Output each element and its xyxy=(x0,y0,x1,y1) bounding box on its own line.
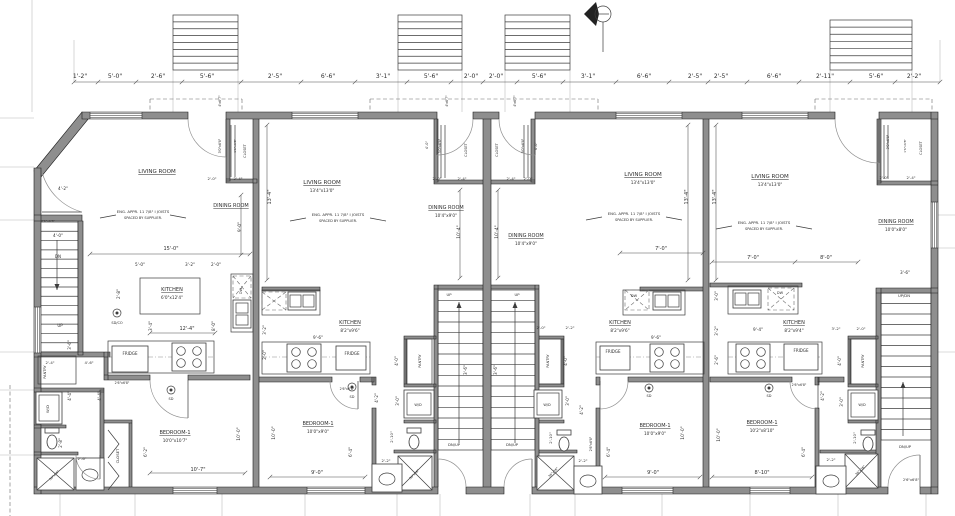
dishwasher-label: DW xyxy=(239,287,243,294)
dim-label: 7'-0" xyxy=(747,255,759,261)
stair-label: DN/UP xyxy=(899,444,912,449)
room-size: 13'4"x13'0" xyxy=(310,188,335,193)
dim-label: 6'-2" xyxy=(143,447,148,457)
door-size: 2'6"x6'8" xyxy=(340,387,355,391)
dim-label: 9'-4" xyxy=(753,327,763,332)
dim-label: 2'-0" xyxy=(489,73,503,80)
dim-label: 15'-0" xyxy=(163,246,178,252)
dim-label: 2'-11" xyxy=(816,73,834,80)
dim-label: 3'-4" xyxy=(148,321,153,331)
dim-label: 2'-0" xyxy=(524,176,533,181)
door-size: 3'0"x6'8" xyxy=(521,138,525,153)
fridge-label: FRIDGE xyxy=(794,348,809,353)
fridge-label: FRIDGE xyxy=(606,349,621,354)
window xyxy=(742,112,808,119)
room-label-bedroom-3: BEDROOM-1 xyxy=(639,423,670,429)
room-label-bedroom-4: BEDROOM-1 xyxy=(746,420,777,426)
window xyxy=(90,112,142,119)
pantry-label: PANTRY xyxy=(418,353,422,367)
window xyxy=(750,487,790,494)
kitchen-sink xyxy=(653,292,681,310)
room-label-dining-3: DINING ROOM xyxy=(508,233,543,239)
room-size: 8'2"x9'6" xyxy=(610,328,629,333)
dim-label: 10'-7" xyxy=(190,467,205,473)
joist-note: SPACED BY SUPPLIER. xyxy=(124,216,162,220)
joist-note: SPACED BY SUPPLIER. xyxy=(615,218,653,222)
stove xyxy=(736,344,770,372)
smoke-detector-label: SD xyxy=(767,394,772,398)
stove xyxy=(287,344,321,372)
door-size: 3'0"x6'8" xyxy=(438,138,442,153)
dishwasher-label: DW xyxy=(631,294,638,298)
dim-label: 6'-4" xyxy=(801,447,806,457)
room-label-kitchen-3: KITCHEN xyxy=(609,320,631,326)
dim-label: 3'-6" xyxy=(493,365,498,375)
dim-label: 8'-10" xyxy=(754,470,769,476)
fridge-label: FRIDGE xyxy=(345,351,360,356)
dim-label: 3'-0" xyxy=(395,396,400,406)
dim-label: 2'-10" xyxy=(548,432,553,444)
joist-note: ENG. APPR. 11 7/8" I JOISTS xyxy=(738,220,791,225)
room-label-living-2: LIVING ROOM xyxy=(303,180,341,186)
room-size: 10'0"x9'0" xyxy=(307,429,329,434)
dim-label: 6'-6" xyxy=(637,73,651,80)
closet-label: CLOSET xyxy=(243,143,247,157)
joist-note: ENG. APPR. 11 7/8" I JOISTS xyxy=(117,209,170,214)
washer-dryer-label: W/D xyxy=(858,403,866,407)
dim-label: 13'-4" xyxy=(684,189,690,204)
door-size: 1'6"x6'8" xyxy=(903,138,907,152)
window xyxy=(931,202,938,248)
stair-label: DN/UP xyxy=(506,442,519,447)
room-label-living-3: LIVING ROOM xyxy=(624,172,662,178)
room-size: 6'0"x12'4" xyxy=(161,295,183,300)
dim-label: 2'-2" xyxy=(382,458,391,463)
dim-label: 9'-6" xyxy=(313,335,323,340)
door-size: 3'0"x6'8" xyxy=(218,138,222,153)
dishwasher-label: DW xyxy=(777,291,784,295)
dim-label: 6'-6" xyxy=(767,73,781,80)
door-size: 2'6"x6'8" xyxy=(903,478,920,482)
washer-dryer-label: W/D xyxy=(414,403,422,407)
dim-label: 3'-0" xyxy=(839,397,844,407)
dim-label: 2'-0" xyxy=(537,325,546,330)
closet-label: CLOSET xyxy=(464,142,468,156)
room-size: 10'2"x8'10" xyxy=(750,428,775,433)
window xyxy=(622,487,673,494)
dim-label: 2'-2" xyxy=(907,73,921,80)
floor-plan-canvas: 1'-2"5'-0"2'-6"5'-6"2'-5"6'-6"3'-1"5'-6"… xyxy=(0,0,955,516)
dim-label: 6'-4" xyxy=(348,447,353,457)
dim-label: 5'-6" xyxy=(532,73,546,80)
dim-label: 4'-0" xyxy=(425,140,429,149)
smoke-detector-label: SD/CO xyxy=(111,321,123,325)
dim-label: 10'-0" xyxy=(271,426,277,440)
porch-note: 4'x6'7" xyxy=(445,95,449,107)
closet-label: CLOSET xyxy=(115,448,120,463)
dim-label: 2'-4" xyxy=(458,176,467,181)
dim-label: 8'-0" xyxy=(820,255,832,261)
dim-label: 3'-2" xyxy=(714,326,719,336)
dim-label: 9'-6" xyxy=(651,335,661,340)
closet-label: CLOSET xyxy=(919,140,923,154)
washer-dryer-label: W/D xyxy=(543,403,551,407)
dim-label: 2'-0" xyxy=(464,73,478,80)
dim-label: 2'-4" xyxy=(46,360,55,365)
dim-label: 4'-2" xyxy=(820,391,825,401)
dim-label: 2'-8" xyxy=(58,438,63,448)
room-label-kitchen-4: KITCHEN xyxy=(783,320,805,326)
window xyxy=(34,307,41,353)
dim-label: 6'-4" xyxy=(606,447,611,457)
dim-label: 2'-6" xyxy=(78,456,87,461)
dim-label: 13'-4" xyxy=(267,189,273,204)
dim-label: 3'-2" xyxy=(262,325,267,335)
dim-label: 4'-0" xyxy=(53,233,63,238)
dim-label: 4'-0" xyxy=(534,141,538,150)
dim-label: 2'-0" xyxy=(857,326,866,331)
joist-note: SPACED BY SUPPLIER. xyxy=(745,227,783,231)
stove xyxy=(172,343,206,371)
smoke-detector-label: SD xyxy=(350,395,355,399)
dim-label: 3'-0" xyxy=(565,396,570,406)
smoke-detector-label: SD xyxy=(647,394,652,398)
vanity-sink xyxy=(574,466,602,494)
dim-label: 6'-6" xyxy=(321,73,335,80)
room-size: 10'0"x9'0" xyxy=(644,431,666,436)
dim-label: 2'-2" xyxy=(579,458,588,463)
dim-label: 12'-4" xyxy=(179,326,194,332)
dim-label: 5'-0" xyxy=(135,262,145,267)
window xyxy=(292,112,358,119)
closet-label: CLOSET xyxy=(495,142,499,156)
porch-note: 4'x6'7" xyxy=(218,95,222,107)
stair-label: DN/UP xyxy=(448,442,461,447)
dim-label: 9'-0" xyxy=(311,470,323,476)
dim-label: 2'-5" xyxy=(688,73,702,80)
dim-label: 4'-6" xyxy=(85,360,94,365)
dim-label: 3'-1" xyxy=(581,73,595,80)
dim-label: 10'-0" xyxy=(680,426,686,440)
floor-plan: 1'-2"5'-0"2'-6"5'-6"2'-5"6'-6"3'-1"5'-6"… xyxy=(0,0,955,516)
room-size: 10'4"x9'0" xyxy=(435,213,457,218)
door-size: 2'6"x6'8" xyxy=(792,383,807,387)
room-label-bedroom-2: BEDROOM-1 xyxy=(302,421,333,427)
door-size: 1'6"x6'8" xyxy=(233,138,237,152)
dim-label: 2'-6" xyxy=(714,355,719,365)
room-label-kitchen-1: KITCHEN xyxy=(161,287,183,293)
room-size: 8'2"x9'6" xyxy=(340,328,359,333)
dim-label: 10'-0" xyxy=(236,427,242,441)
dim-label: 3'-6" xyxy=(67,340,72,350)
dim-label: 4'-2" xyxy=(579,405,584,415)
dim-label: 3'-2" xyxy=(832,326,841,331)
room-size: 13'4"x13'0" xyxy=(631,180,656,185)
pantry-label: PANTRY xyxy=(43,364,47,378)
dim-label: 2'-8" xyxy=(116,289,121,299)
stair-label: UP/DN xyxy=(898,293,910,298)
dim-label: 5'-6" xyxy=(424,73,438,80)
dim-label: 2'-4" xyxy=(907,175,916,180)
room-label-dining-2: DINING ROOM xyxy=(428,205,463,211)
vanity-sink xyxy=(372,464,402,492)
room-size: 13'4"x13'0" xyxy=(758,182,783,187)
dim-label: 7'-0" xyxy=(655,246,667,252)
dim-label: 4'-4" xyxy=(97,391,102,401)
dim-label: 3'-2" xyxy=(185,262,195,267)
stove xyxy=(650,344,684,372)
dim-label: 2'-10" xyxy=(852,432,857,444)
stair-label: UP xyxy=(446,292,452,297)
dim-label: 4'-2" xyxy=(58,186,68,191)
dim-label: 10'-4" xyxy=(494,225,500,239)
kitchen-sink xyxy=(288,292,316,310)
dim-label: 3'-6" xyxy=(463,365,468,375)
room-size: 10'0"x8'0" xyxy=(885,227,907,232)
dim-label: 4'-2" xyxy=(374,393,379,403)
pantry-label: PANTRY xyxy=(861,353,865,367)
dim-label: 3'-6" xyxy=(900,270,910,275)
kitchen-sink xyxy=(733,290,761,308)
stair-label: UP xyxy=(514,292,520,297)
dim-label: 3'-0" xyxy=(714,291,719,301)
window xyxy=(307,487,365,494)
dim-label: 4'-4" xyxy=(67,391,72,401)
kitchen-sink xyxy=(233,300,251,328)
room-size: 10'4"x9'0" xyxy=(515,241,537,246)
dim-label: 8'-0" xyxy=(211,321,216,331)
room-size: 8'2"x9'4" xyxy=(784,328,803,333)
dim-label: 4'-0" xyxy=(394,356,399,366)
door-size: 2'6"x6'8" xyxy=(589,436,593,451)
door-size: 2'6"x6'8" xyxy=(115,381,130,385)
dim-label: 10'-0" xyxy=(716,428,722,442)
dim-label: 2'-0" xyxy=(262,350,267,360)
dim-label: 2'-0" xyxy=(208,176,217,181)
room-label-living-1: LIVING ROOM xyxy=(138,169,176,175)
dim-label: 2'-10" xyxy=(389,431,394,443)
joist-note: ENG. APPR. 11 7/8" I JOISTS xyxy=(312,212,365,217)
dim-label: 2'-0" xyxy=(880,175,889,180)
smoke-detector-label: SD xyxy=(169,397,174,401)
dim-label: 5'-0" xyxy=(108,73,122,80)
dim-label: 2'-0" xyxy=(211,262,221,267)
washer-dryer-label: W/D xyxy=(45,405,50,413)
room-label-kitchen-2: KITCHEN xyxy=(339,320,361,326)
room-size: 10'0"x10'7" xyxy=(163,438,188,443)
dim-label: 2'-4" xyxy=(234,176,243,181)
dim-label: 3'-1" xyxy=(376,73,390,80)
window xyxy=(616,112,682,119)
fridge xyxy=(112,346,148,372)
pantry-label: PANTRY xyxy=(546,353,550,367)
joist-note: ENG. APPR. 11 7/8" I JOISTS xyxy=(608,211,661,216)
room-label-dining-4: DINING ROOM xyxy=(878,219,913,225)
dim-label: 4'-0" xyxy=(563,356,568,366)
joist-note: SPACED BY SUPPLIER. xyxy=(319,219,357,223)
fridge-label: FRIDGE xyxy=(123,351,138,356)
door-size: 3'0"x6'8" xyxy=(886,134,890,149)
dim-label: 13'-4" xyxy=(712,189,718,204)
dim-label: 2'-0" xyxy=(433,176,442,181)
fridge xyxy=(336,346,366,370)
room-label-living-4: LIVING ROOM xyxy=(751,174,789,180)
stair-label: DN xyxy=(55,254,61,259)
window xyxy=(173,487,217,494)
dim-label: 2'-6" xyxy=(151,73,165,80)
room-label-bedroom-1: BEDROOM-1 xyxy=(159,430,190,436)
room-label-dining-1: DINING ROOM xyxy=(213,203,248,209)
dim-label: 2'-5" xyxy=(268,73,282,80)
vanity-sink xyxy=(816,466,846,494)
dim-label: 9'-0" xyxy=(647,470,659,476)
door-size: 2'6"x6'8" xyxy=(41,219,55,223)
dim-label: 5'-6" xyxy=(200,73,214,80)
dim-label: 2'-5" xyxy=(714,73,728,80)
porch-note: 4'x6'7" xyxy=(513,95,517,107)
dim-label: 2'-2" xyxy=(827,457,836,462)
shower xyxy=(537,456,574,490)
dim-label: 5'-6" xyxy=(869,73,883,80)
dim-label: 9'-0" xyxy=(237,222,242,232)
dim-label: 4'-0" xyxy=(837,356,842,366)
dim-label: 1'-2" xyxy=(73,73,87,80)
dim-label: 10'-4" xyxy=(456,225,462,239)
stair-label: UP xyxy=(57,323,63,328)
dim-label: 2'-4" xyxy=(507,176,516,181)
dim-label: 2'-2" xyxy=(566,325,575,330)
